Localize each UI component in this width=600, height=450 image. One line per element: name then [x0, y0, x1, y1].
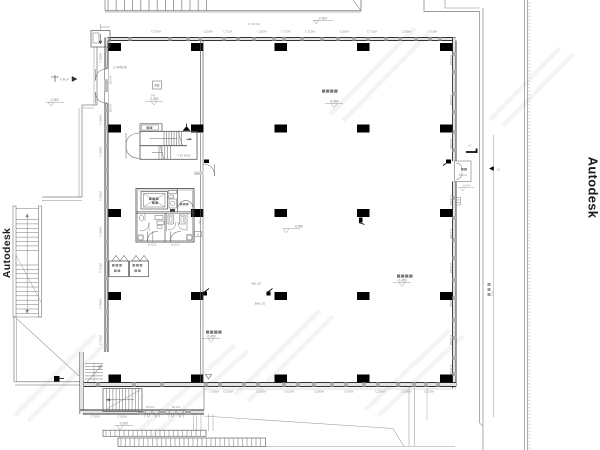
svg-text:C313M: C313M — [284, 390, 294, 394]
svg-text:C155M: C155M — [99, 227, 103, 237]
svg-text:M: M — [197, 234, 199, 237]
svg-text:C103M: C103M — [99, 147, 103, 157]
svg-text:-0.450: -0.450 — [206, 335, 215, 339]
svg-text:XBL-15: XBL-15 — [251, 282, 261, 286]
svg-text:C155M: C155M — [99, 115, 103, 125]
svg-text:JA-1: JA-1 — [491, 291, 495, 297]
svg-text:M1024: M1024 — [459, 173, 467, 177]
svg-text:-0.600: -0.600 — [119, 422, 128, 426]
svg-text:C713M: C713M — [427, 30, 437, 34]
svg-text:C313M: C313M — [223, 390, 233, 394]
svg-text:C703P: C703P — [90, 415, 99, 419]
svg-text:-0.600: -0.600 — [318, 16, 327, 20]
svg-text:C713A: C713A — [223, 30, 232, 34]
svg-text:C255M: C255M — [401, 30, 411, 34]
svg-text:-0.600: -0.600 — [462, 184, 471, 188]
svg-text:C713M: C713M — [449, 263, 453, 273]
svg-text:C133M: C133M — [449, 139, 453, 149]
svg-text:C250M: C250M — [375, 390, 385, 394]
svg-text:W1022: W1022 — [171, 243, 180, 247]
svg-text:C253A: C253A — [257, 30, 266, 34]
svg-text:Autodesk: Autodesk — [1, 228, 13, 278]
svg-text:C713M: C713M — [449, 335, 453, 345]
svg-text:M1024: M1024 — [109, 103, 113, 112]
svg-text:-0.450: -0.450 — [294, 225, 303, 229]
svg-text:M1324: M1324 — [172, 405, 181, 409]
svg-text:M1029: M1029 — [146, 405, 155, 409]
svg-text:C103M: C103M — [117, 415, 127, 419]
svg-text:M1024: M1024 — [109, 75, 113, 84]
svg-text:-0.450: -0.450 — [149, 97, 158, 101]
svg-text:Autodesk: Autodesk — [586, 157, 600, 219]
svg-text:C723M: C723M — [151, 30, 161, 34]
svg-text:7.87 8000: 7.87 8000 — [177, 154, 191, 158]
svg-text:-0.600: -0.600 — [50, 98, 59, 102]
svg-text:BHL-15: BHL-15 — [255, 302, 266, 306]
svg-text:C103M: C103M — [99, 53, 103, 63]
svg-text:1-04#E08: 1-04#E08 — [113, 66, 127, 70]
svg-text:C150A: C150A — [203, 30, 212, 34]
svg-text:F 86.P: F 86.P — [60, 78, 69, 82]
svg-text:F8: F8 — [155, 83, 161, 88]
svg-text:C713M: C713M — [449, 195, 453, 205]
svg-text:C708M: C708M — [99, 299, 103, 309]
svg-text:C713M: C713M — [367, 30, 377, 34]
svg-text:M1023: M1023 — [195, 172, 203, 176]
svg-text:C713K: C713K — [281, 30, 290, 34]
svg-text:C133M: C133M — [449, 95, 453, 105]
svg-text:JA: JA — [497, 168, 500, 172]
svg-text:C703M: C703M — [209, 390, 219, 394]
svg-text:C103M: C103M — [99, 335, 103, 345]
svg-text:C713M: C713M — [99, 263, 103, 273]
svg-text:C133M: C133M — [449, 229, 453, 239]
svg-text:C703K: C703K — [344, 390, 353, 394]
svg-text:C138M: C138M — [401, 390, 411, 394]
svg-text:C713M: C713M — [424, 390, 434, 394]
svg-text:C713M: C713M — [449, 365, 453, 375]
svg-text:C255M: C255M — [256, 390, 266, 394]
svg-text:C713M: C713M — [449, 55, 453, 65]
svg-text:C155M: C155M — [339, 30, 349, 34]
svg-text:W1022: W1022 — [148, 243, 157, 247]
svg-text:-0.450: -0.450 — [329, 100, 338, 104]
svg-text:PS: PS — [198, 220, 202, 224]
svg-text:C713M: C713M — [305, 30, 315, 34]
svg-text:C250M: C250M — [314, 390, 324, 394]
svg-text:47.82 Mx: 47.82 Mx — [248, 22, 261, 26]
svg-text:C155M: C155M — [99, 191, 103, 201]
svg-text:-0.450: -0.450 — [397, 279, 406, 283]
